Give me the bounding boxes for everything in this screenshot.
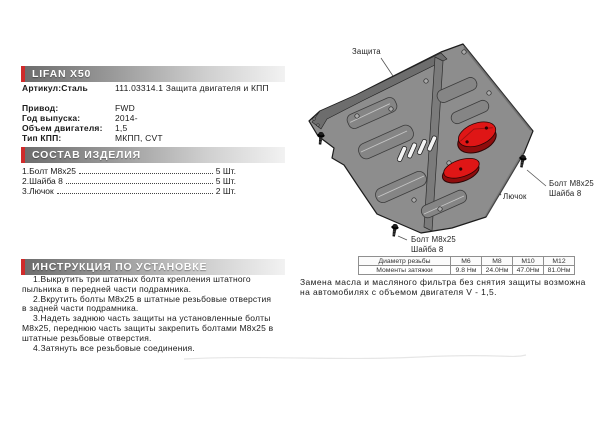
part-item-hatch: 3.Лючок 2 Шт. xyxy=(22,186,236,196)
product-title-bar: LIFAN X50 xyxy=(21,66,285,82)
part-name: 3.Лючок xyxy=(22,186,54,196)
torque-row-label: Моменты затяжки xyxy=(359,266,451,275)
product-title: LIFAN X50 xyxy=(25,68,91,80)
article-label: Артикул:Сталь xyxy=(22,83,88,93)
torque-m6: M6 xyxy=(451,257,482,266)
part-name: 2.Шайба 8 xyxy=(22,176,63,186)
torque-m12-value: 81.0Нм xyxy=(544,266,575,275)
instruction-step: 2.Вкрутить болты M8x25 в штатные резьбов… xyxy=(22,295,274,315)
oil-change-note: Замена масла и масляного фильтра без сня… xyxy=(300,277,592,297)
dot-leader xyxy=(66,183,213,184)
torque-table-header-row: Диаметр резьбы M6 M8 M10 M12 xyxy=(359,257,575,266)
spec-label: Год выпуска: xyxy=(22,113,80,123)
instructions-text: 1.Выкрутить три штатных болта крепления … xyxy=(22,275,274,353)
torque-m12: M12 xyxy=(544,257,575,266)
spec-label: Объем двигателя: xyxy=(22,123,103,133)
scan-artifact xyxy=(180,350,530,366)
dot-leader xyxy=(57,193,213,194)
article-value: 111.03314.1 Защита двигателя и КПП xyxy=(115,83,269,93)
instructions-title: ИНСТРУКЦИЯ ПО УСТАНОВКЕ xyxy=(25,261,207,273)
label-bolt-right: Болт M8x25 Шайба 8 xyxy=(549,179,594,198)
composition-title: СОСТАВ ИЗДЕЛИЯ xyxy=(25,149,141,161)
spec-value: МКПП, CVT xyxy=(115,133,163,143)
spec-value: 1,5 xyxy=(115,123,127,133)
torque-m6-value: 9.8 Нм xyxy=(451,266,482,275)
bolt-icon-bottom xyxy=(390,224,399,237)
spec-row-gearbox: Тип КПП: МКПП, CVT xyxy=(22,133,61,143)
shield-diagram xyxy=(300,20,600,270)
spec-row-drive: Привод: FWD xyxy=(22,103,58,113)
spec-value: 2014- xyxy=(115,113,138,123)
shield-plate-shape xyxy=(309,44,533,233)
label-bolt-bottom-l1: Болт M8x25 xyxy=(411,235,456,245)
spec-label: Тип КПП: xyxy=(22,133,61,143)
spec-row-year: Год выпуска: 2014- xyxy=(22,113,80,123)
part-qty: 2 Шт. xyxy=(216,186,236,196)
torque-m10: M10 xyxy=(513,257,544,266)
part-qty: 5 Шт. xyxy=(216,166,236,176)
label-bolt-right-l2: Шайба 8 xyxy=(549,189,594,199)
torque-col-label: Диаметр резьбы xyxy=(359,257,451,266)
torque-table: Диаметр резьбы M6 M8 M10 M12 Моменты зат… xyxy=(358,256,575,275)
torque-table-value-row: Моменты затяжки 9.8 Нм 24.0Нм 47.0Нм 81.… xyxy=(359,266,575,275)
torque-m8-value: 24.0Нм xyxy=(482,266,513,275)
part-item-washer: 2.Шайба 8 5 Шт. xyxy=(22,176,236,186)
label-bolt-bottom-l2: Шайба 8 xyxy=(411,245,456,255)
instruction-step: 3.Надеть заднюю часть защиты на установл… xyxy=(22,314,274,343)
label-bolt-right-l1: Болт M8x25 xyxy=(549,179,594,189)
label-shield: Защита xyxy=(352,47,381,57)
part-name: 1.Болт M8x25 xyxy=(22,166,76,176)
spec-label: Привод: xyxy=(22,103,58,113)
article-row: Артикул:Сталь 111.03314.1 Защита двигате… xyxy=(22,83,88,93)
spec-row-engine: Объем двигателя: 1,5 xyxy=(22,123,103,133)
instruction-sheet: LIFAN X50 Артикул:Сталь 111.03314.1 Защи… xyxy=(0,0,600,424)
part-item-bolt: 1.Болт M8x25 5 Шт. xyxy=(22,166,236,176)
label-bolt-bottom: Болт M8x25 Шайба 8 xyxy=(411,235,456,254)
part-qty: 5 Шт. xyxy=(216,176,236,186)
torque-m10-value: 47.0Нм xyxy=(513,266,544,275)
instruction-step: 1.Выкрутить три штатных болта крепления … xyxy=(22,275,274,295)
torque-m8: M8 xyxy=(482,257,513,266)
label-hatch: Лючок xyxy=(503,192,527,202)
composition-title-bar: СОСТАВ ИЗДЕЛИЯ xyxy=(21,147,285,163)
dot-leader xyxy=(79,173,213,174)
spec-value: FWD xyxy=(115,103,135,113)
instructions-title-bar: ИНСТРУКЦИЯ ПО УСТАНОВКЕ xyxy=(21,259,285,275)
